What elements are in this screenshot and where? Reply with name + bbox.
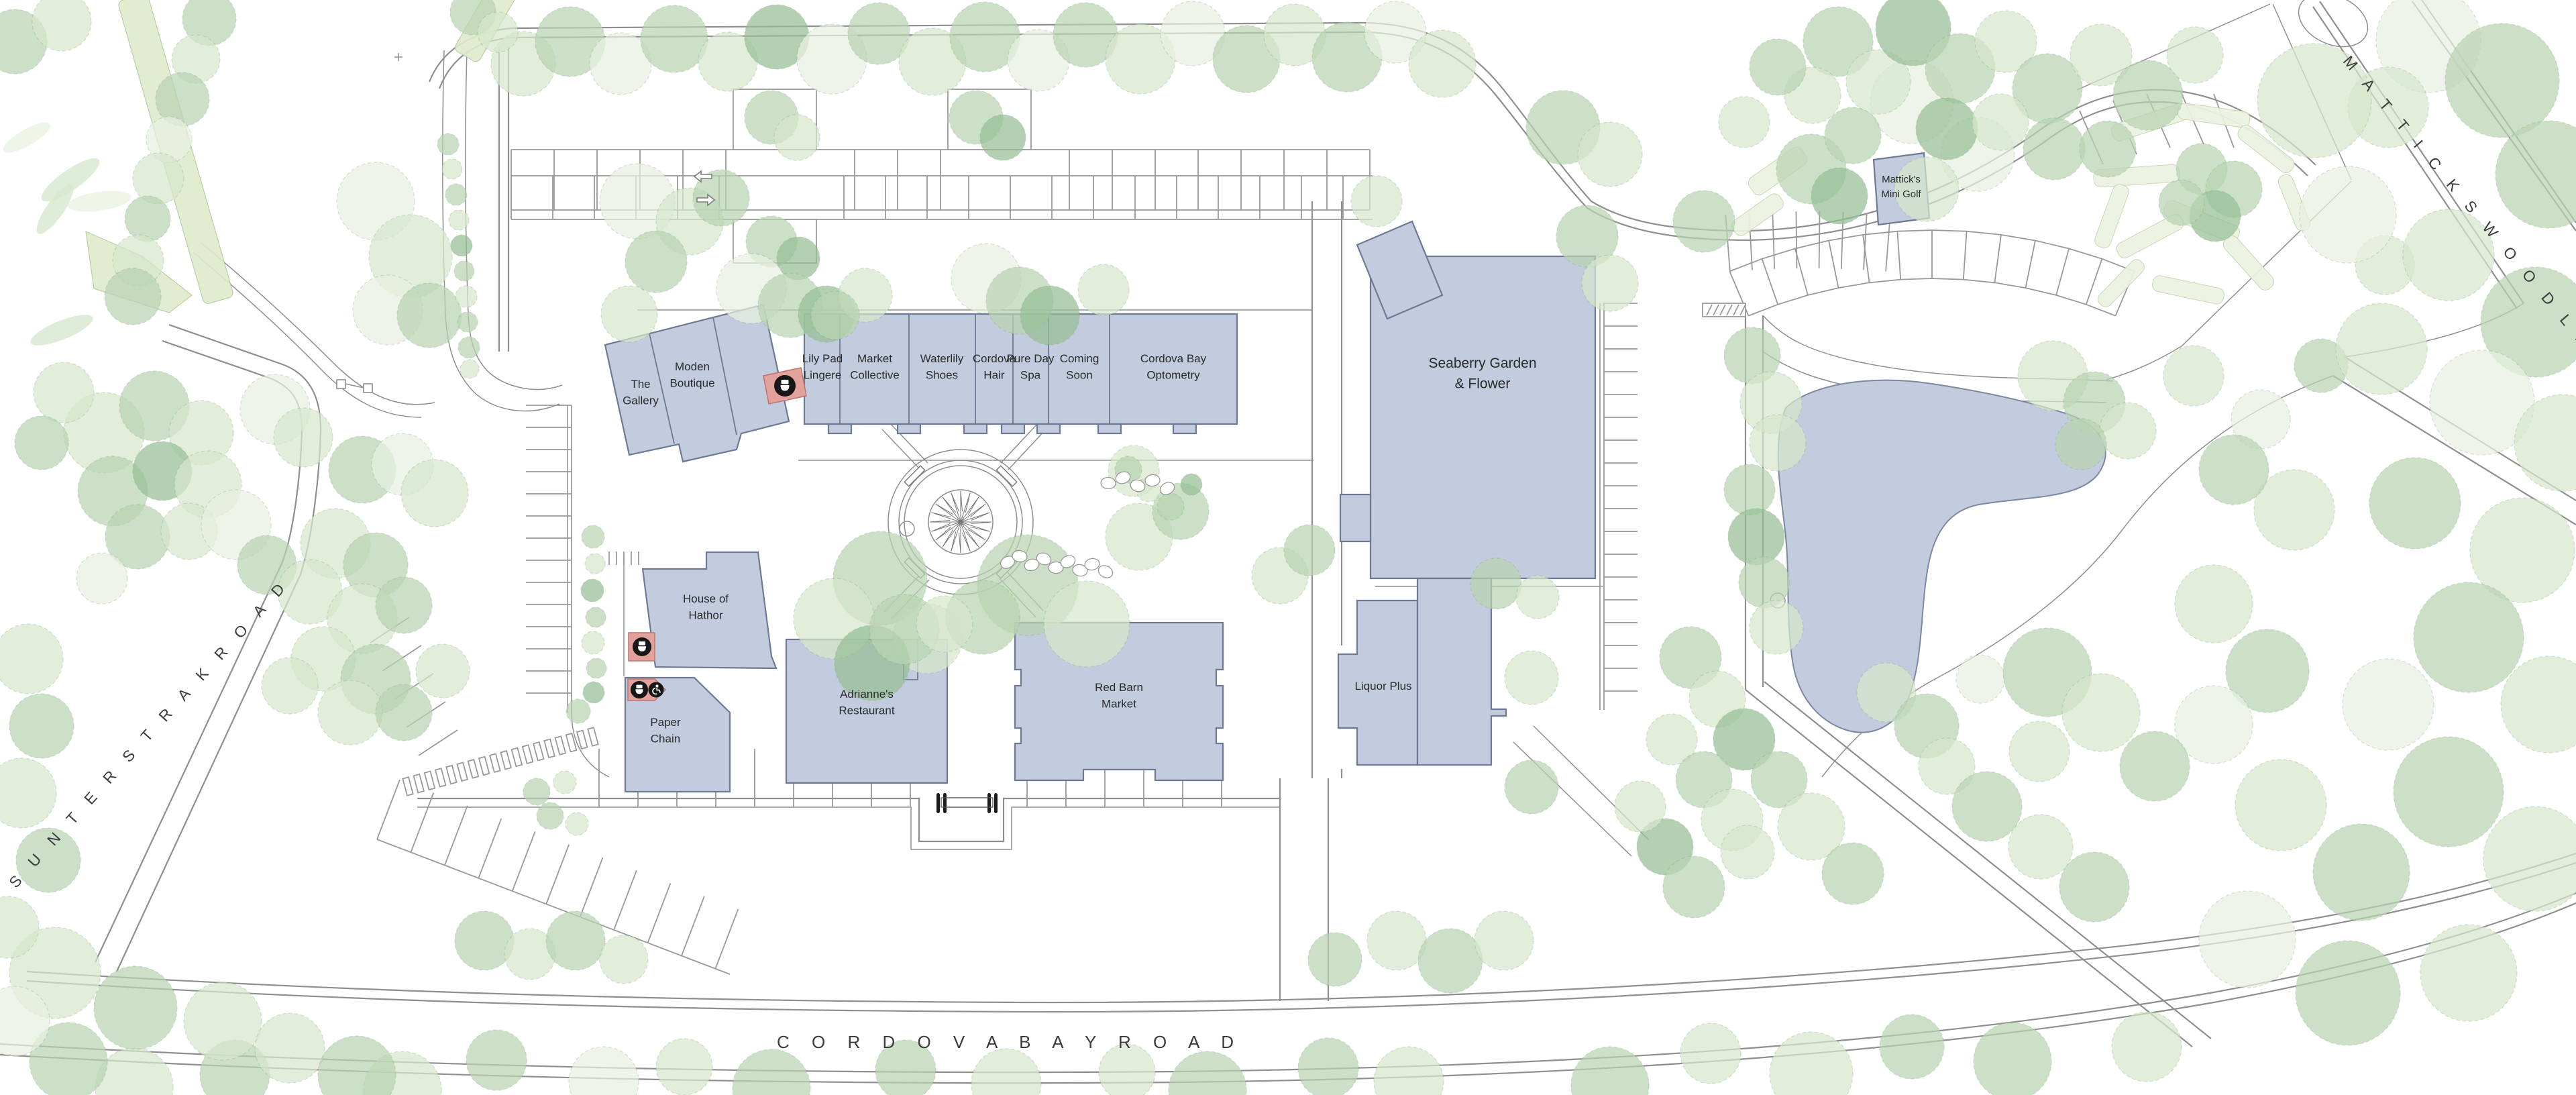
- tree-canopy: [1956, 655, 2004, 703]
- tree-canopy: [586, 658, 606, 678]
- tree-canopy: [1409, 30, 1476, 97]
- tree-canopy: [582, 525, 604, 548]
- tree-canopy: [2120, 731, 2190, 801]
- mini-golf-fairway: [2220, 233, 2276, 293]
- shop-vestibule: [898, 424, 920, 433]
- toilet-icon: [638, 641, 646, 651]
- tree-canopy: [1770, 1032, 1853, 1095]
- tree-canopy: [1680, 1023, 1741, 1084]
- paver: [555, 736, 566, 754]
- tree-canopy: [641, 5, 708, 72]
- path-post: [364, 384, 372, 393]
- path-post: [337, 380, 345, 388]
- tree-canopy: [401, 460, 468, 527]
- paver: [425, 772, 435, 790]
- tree-canopy: [733, 1049, 810, 1095]
- tree-canopy: [454, 261, 474, 281]
- gate-bollards: [936, 793, 998, 813]
- tree-canopy: [1750, 601, 1803, 654]
- tree-canopy: [262, 658, 318, 714]
- tree-canopy: [811, 291, 859, 340]
- tree-canopy: [2163, 346, 2224, 406]
- washroom-marker: [629, 633, 655, 661]
- leaf-frond: [0, 117, 54, 158]
- paver: [588, 727, 598, 745]
- shop-vestibule: [1037, 424, 1060, 433]
- paver: [479, 757, 489, 775]
- road-label-cordova-bay-road: C O R D O V A B A Y R O A D: [777, 1032, 1242, 1052]
- tree-canopy: [1374, 1047, 1444, 1095]
- tree-canopy: [2235, 760, 2326, 851]
- paver: [468, 760, 478, 778]
- tree-canopy: [566, 699, 590, 723]
- tree-canopy: [1516, 576, 1559, 619]
- tree-canopy: [774, 115, 820, 160]
- tree-canopy: [2159, 180, 2204, 225]
- tree-canopy: [0, 624, 63, 694]
- tree-canopy: [2300, 166, 2396, 263]
- tree-canopy: [255, 1013, 325, 1083]
- tree-canopy: [600, 935, 648, 984]
- tree-canopy: [916, 596, 973, 652]
- leaf-frond: [66, 187, 133, 215]
- tree-canopy: [416, 644, 470, 698]
- tree-canopy: [2100, 403, 2156, 459]
- tree-canopy: [1728, 509, 1784, 565]
- tree-canopy: [2008, 815, 2073, 879]
- tree-canopy: [1822, 843, 1884, 904]
- tree-canopy: [1615, 781, 1666, 832]
- tree-canopy: [1972, 94, 2029, 150]
- tree-canopy: [537, 802, 563, 829]
- tree-canopy: [585, 554, 605, 574]
- tree-canopy: [2112, 1012, 2182, 1082]
- stone: [1101, 477, 1116, 489]
- paver: [500, 751, 511, 769]
- tree-canopy: [1582, 255, 1638, 311]
- tree-canopy: [546, 911, 605, 970]
- tree-canopy: [980, 115, 1026, 160]
- tree-canopy: [455, 911, 514, 970]
- tree-canopy: [460, 360, 479, 378]
- tree-canopy: [1721, 825, 1774, 879]
- paver: [523, 745, 533, 763]
- tree-canopy: [2445, 23, 2559, 138]
- tree-canopy: [2023, 118, 2085, 180]
- leaf-frond: [27, 309, 96, 351]
- tree-canopy: [2062, 674, 2140, 751]
- tree-canopy: [1724, 464, 1775, 515]
- tree-canopy: [2369, 458, 2461, 549]
- tree-canopy: [1571, 1047, 1649, 1095]
- paver: [435, 768, 445, 786]
- sunburst-paving: [930, 491, 991, 553]
- tree-canopy: [455, 286, 477, 307]
- tree-canopy: [2175, 686, 2253, 764]
- tree-canopy: [1663, 856, 1725, 918]
- toilet-icon: [631, 681, 648, 698]
- tree-canopy: [601, 286, 657, 342]
- mini-golf-fairway: [2093, 182, 2131, 250]
- shop-vestibule: [1002, 424, 1024, 433]
- tree-canopy: [1474, 911, 1534, 970]
- paver: [490, 753, 500, 772]
- tree-canopy: [1825, 107, 1881, 164]
- tree-canopy: [583, 682, 604, 703]
- tree-canopy: [458, 312, 478, 332]
- tree-canopy: [971, 1049, 1041, 1095]
- tree-canopy: [1916, 98, 1978, 160]
- tree-canopy: [1044, 581, 1130, 667]
- tree-canopy: [2296, 941, 2400, 1045]
- tree-canopy: [2414, 582, 2524, 692]
- tree-canopy: [1078, 264, 1129, 315]
- tree-canopy: [1750, 39, 1806, 95]
- tree-canopy: [1367, 911, 1426, 970]
- tree-canopy: [582, 631, 604, 654]
- tree-canopy: [437, 134, 459, 155]
- paver: [533, 742, 543, 760]
- tree-canopy: [76, 553, 127, 604]
- building-liquor-plus: [1338, 578, 1506, 765]
- tree-canopy: [133, 153, 184, 204]
- tree-canopies: [0, 0, 2576, 1095]
- tree-canopy: [581, 579, 604, 602]
- tree-canopy: [9, 694, 74, 758]
- tree-canopy: [1418, 929, 1483, 993]
- tree-canopy: [566, 813, 588, 835]
- paver: [457, 763, 467, 781]
- tree-canopy: [2059, 852, 2129, 922]
- tree-canopy: [1157, 493, 1184, 520]
- tree-canopy: [1181, 474, 1202, 495]
- tree-canopy: [125, 196, 170, 242]
- tree-canopy: [2175, 565, 2253, 643]
- plaza-bench: [996, 466, 1016, 486]
- shop-vestibule: [828, 424, 851, 433]
- paver: [414, 774, 424, 792]
- tree-canopy: [1505, 651, 1558, 705]
- tree-canopy: [274, 408, 333, 467]
- tree-canopy: [2055, 419, 2106, 470]
- tree-canopy: [569, 1047, 639, 1095]
- tree-canopy: [1505, 760, 1558, 814]
- tree-canopy: [2167, 27, 2223, 83]
- tree-canopy: [1750, 415, 1806, 471]
- paver: [446, 766, 456, 784]
- tree-canopy: [105, 268, 161, 325]
- tree-canopy: [1020, 286, 1079, 345]
- tree-canopy: [2009, 721, 2070, 782]
- tree-canopy: [0, 758, 56, 828]
- tree-canopy: [2199, 891, 2296, 988]
- tree-canopy: [586, 607, 606, 627]
- tree-canopy: [376, 684, 432, 741]
- tree-canopy: [523, 778, 550, 805]
- wheelchair-icon: [649, 682, 664, 698]
- tree-canopy: [553, 771, 576, 794]
- tree-canopy: [1673, 191, 1735, 252]
- mini-golf-fairway: [2151, 274, 2226, 305]
- tree-canopy: [2199, 435, 2269, 505]
- plaza-bench: [904, 466, 924, 486]
- building-seaberry-garden-flower: [1340, 221, 1595, 578]
- tree-canopy: [1719, 97, 1770, 148]
- tree-canopy: [1470, 558, 1521, 609]
- tree-canopy: [318, 680, 382, 745]
- tree-canopy: [2343, 659, 2434, 750]
- tree-canopy: [34, 362, 94, 423]
- tree-canopy: [1739, 557, 1790, 608]
- tree-canopy: [451, 235, 472, 256]
- tree-canopy: [777, 237, 820, 280]
- tree-canopy: [1811, 168, 1868, 224]
- paver: [512, 748, 522, 766]
- tree-canopy: [442, 159, 462, 179]
- tree-canopy: [1578, 122, 1642, 187]
- tree-canopy: [478, 12, 518, 52]
- paver: [544, 739, 554, 758]
- tree-canopy: [2336, 303, 2427, 395]
- tree-canopy: [445, 184, 467, 205]
- tree-canopy: [2394, 737, 2504, 847]
- tree-canopy: [184, 982, 262, 1060]
- tree-canopy: [656, 1039, 712, 1095]
- tree-canopy: [94, 966, 177, 1049]
- tree-canopy: [1284, 525, 1335, 576]
- tree-canopy: [318, 1036, 396, 1095]
- shop-vestibule: [1173, 424, 1196, 433]
- tree-canopy: [449, 210, 469, 230]
- toilet-icon: [781, 380, 790, 391]
- tree-canopy: [2313, 824, 2410, 921]
- tree-canopy: [1298, 1038, 1358, 1095]
- tree-canopy: [2420, 925, 2517, 1021]
- tree-canopy: [1169, 1051, 1246, 1095]
- tree-canopy: [466, 1030, 527, 1090]
- tree-canopy: [397, 283, 462, 348]
- shop-vestibule: [964, 424, 987, 433]
- tree-canopy: [1308, 933, 1362, 986]
- site-map: TheGallery ModenBoutique Lily PadLingere…: [0, 0, 2576, 1095]
- tree-canopy: [625, 231, 687, 293]
- tree-canopy: [1974, 1023, 2051, 1095]
- shop-vestibule: [1098, 424, 1121, 433]
- tree-canopy: [1952, 772, 2022, 841]
- survey-cross-marker: [394, 53, 402, 61]
- tree-canopy: [1351, 176, 1402, 227]
- building-label-liquor-plus: Liquor Plus: [1354, 680, 1411, 692]
- tree-canopy: [2080, 121, 2136, 177]
- tree-canopy: [1880, 1014, 1944, 1079]
- tree-canopy: [2483, 806, 2576, 911]
- mini-golf-fairway: [2177, 103, 2251, 129]
- tree-canopy: [15, 416, 68, 470]
- tree-canopy: [376, 577, 432, 633]
- tree-canopy: [458, 337, 480, 358]
- paver: [402, 777, 413, 795]
